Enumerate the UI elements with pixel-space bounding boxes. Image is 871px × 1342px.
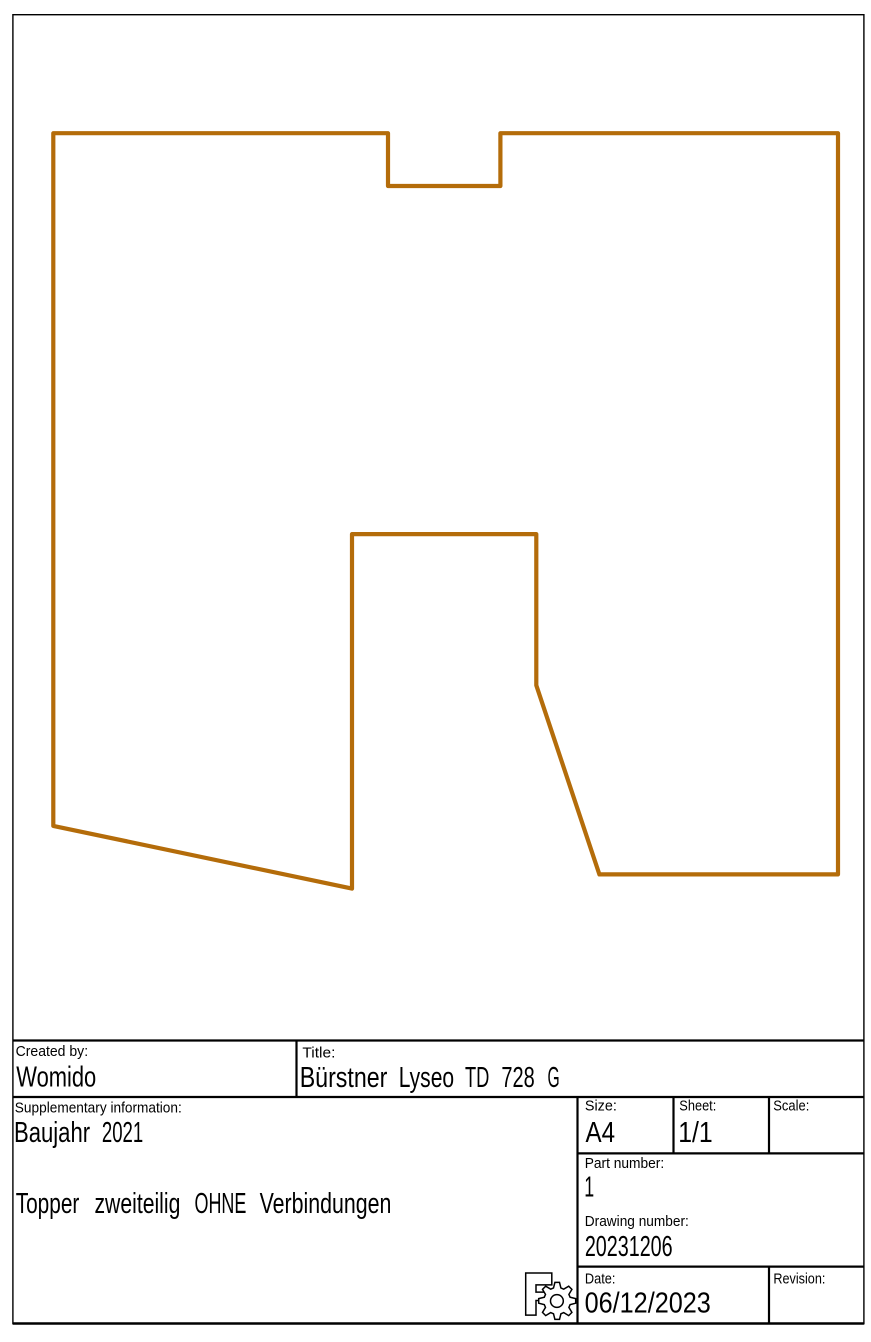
svg-text:Baujahr: Baujahr <box>14 1117 90 1148</box>
svg-text:A4: A4 <box>586 1116 616 1149</box>
svg-text:2021: 2021 <box>102 1117 143 1149</box>
svg-text:Drawing number:: Drawing number: <box>585 1213 689 1230</box>
svg-text:Part number:: Part number: <box>585 1155 665 1172</box>
svg-text:Verbindungen: Verbindungen <box>260 1188 392 1220</box>
svg-text:G: G <box>547 1061 559 1093</box>
svg-text:20231206: 20231206 <box>585 1231 673 1263</box>
svg-text:Title:: Title: <box>302 1045 335 1062</box>
svg-text:728: 728 <box>501 1061 534 1094</box>
svg-text:1/1: 1/1 <box>678 1116 712 1148</box>
svg-text:1: 1 <box>584 1171 594 1204</box>
svg-text:Bürstner: Bürstner <box>300 1060 388 1093</box>
svg-text:06/12/2023: 06/12/2023 <box>585 1286 711 1319</box>
svg-text:Size:: Size: <box>585 1098 617 1115</box>
svg-text:Supplementary information:: Supplementary information: <box>15 1099 182 1116</box>
svg-text:Created by:: Created by: <box>16 1043 89 1060</box>
svg-text:Sheet:: Sheet: <box>679 1098 716 1115</box>
svg-text:Scale:: Scale: <box>773 1098 809 1115</box>
svg-text:zweiteilig: zweiteilig <box>94 1188 180 1220</box>
svg-text:Lyseo: Lyseo <box>399 1062 454 1094</box>
svg-text:Topper: Topper <box>16 1188 80 1220</box>
svg-text:Revision:: Revision: <box>773 1271 825 1288</box>
svg-text:Womido: Womido <box>16 1062 96 1094</box>
svg-text:TD: TD <box>465 1062 489 1094</box>
svg-text:OHNE: OHNE <box>194 1188 246 1220</box>
